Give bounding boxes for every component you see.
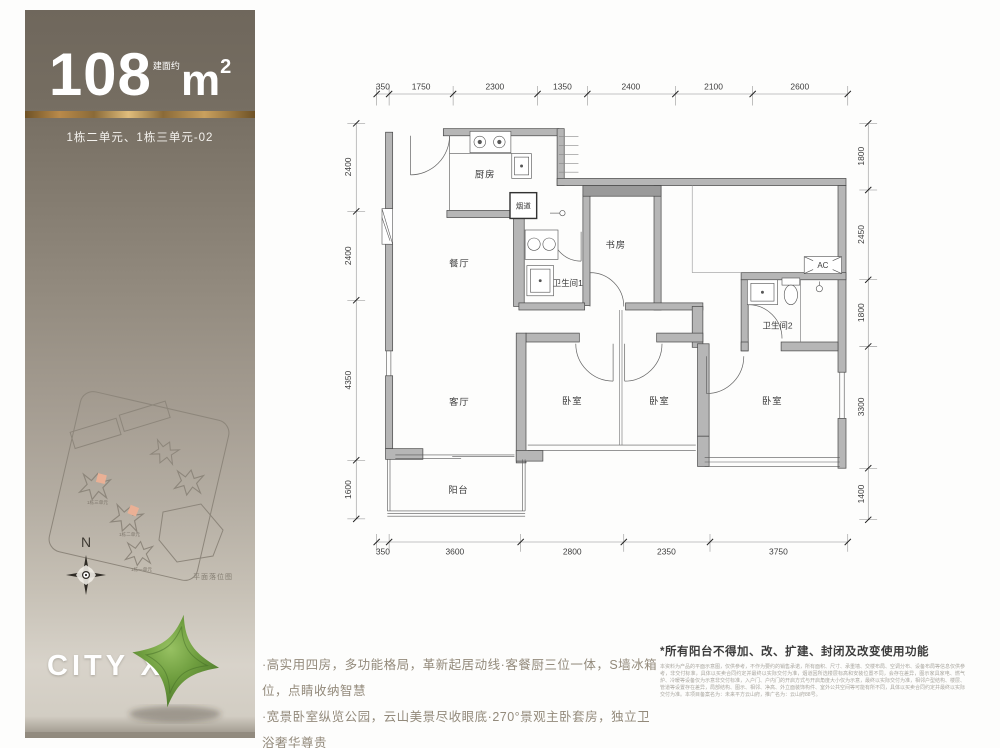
floorplan-poster: 108建面约m2 1栋二单元、1栋三单元-02: [0, 0, 1000, 748]
disclaimer-title: *所有阳台不得加、改、扩建、封闭及改变使用功能: [660, 643, 965, 659]
label-living: 客厅: [449, 396, 469, 407]
dim-left-1: 2400: [343, 246, 353, 265]
dim-bottom-1: 3600: [445, 546, 464, 556]
logo-area: CITY X: [25, 614, 255, 738]
dim-top-2: 2300: [485, 82, 504, 92]
label-study: 书房: [606, 239, 626, 250]
dim-bottom-3: 2350: [657, 546, 676, 556]
dim-top-0: 350: [376, 82, 390, 92]
dim-bottom-4: 3750: [769, 546, 788, 556]
label-ac: AC: [817, 261, 828, 270]
label-bath1: 卫生间1: [553, 278, 583, 288]
building-label-3: 1栋一单元: [131, 566, 152, 573]
dim-top-3: 1350: [553, 82, 572, 92]
sidebar: 108建面约m2 1栋二单元、1栋三单元-02: [25, 10, 255, 738]
dim-left-0: 2400: [343, 157, 353, 176]
green-x-object: [107, 608, 247, 732]
dim-left-2: 4350: [343, 371, 353, 390]
label-balcony: 阳台: [448, 484, 468, 495]
bath2-toilet-icon: [782, 278, 800, 285]
area-superscript: 2: [220, 56, 231, 78]
area-header: 108建面约m2 1栋二单元、1栋三单元-02: [25, 10, 255, 145]
selling-point-1: ·高实用四房，多功能格局，革新起居动线·客餐厨三位一体，S墙冰箱位，点睛收纳智慧: [262, 652, 662, 704]
dimension-numbers: 350 1750 2300 1350 2400 2100 2600 350 36…: [343, 82, 866, 557]
label-bedroom3: 卧室: [762, 395, 782, 406]
disclaimer-body: 本资料为产品的平面示意图，仅供参考，不作为要约的销售承诺，所有面积、尺寸、承重墙…: [660, 664, 965, 699]
area-value: 108: [49, 41, 152, 108]
sidebar-bottom-strip: [25, 732, 255, 738]
shower-head-icon: [816, 286, 822, 292]
dim-top-4: 2400: [621, 82, 640, 92]
compass-rose-icon: [63, 550, 109, 600]
dim-bottom-0: 350: [376, 546, 390, 556]
unit-line: 1栋二单元、1栋三单元-02: [25, 129, 255, 145]
selling-point-2: ·宽景卧室纵览公园，云山美景尽收眼底·270°景观主卧套房，独立卫浴奢华尊贵: [262, 704, 662, 748]
gold-divider: [25, 111, 255, 118]
siteplan-caption: 平面落位图: [193, 572, 233, 582]
label-flue: 烟道: [516, 201, 532, 211]
disclaimer-block: *所有阳台不得加、改、扩建、封闭及改变使用功能 本资料为产品的平面示意图，仅供参…: [660, 643, 965, 699]
area-line: 108建面约m2: [25, 40, 255, 109]
dimension-ticks: [353, 91, 871, 545]
compass-n-label: N: [63, 534, 123, 550]
area-approx-label: 建面约: [153, 61, 180, 71]
dim-bottom-2: 2800: [563, 546, 582, 556]
dim-left-3: 1600: [343, 480, 353, 499]
dim-right-1: 2450: [856, 225, 866, 244]
dim-right-2: 1800: [856, 303, 866, 322]
siteplan-slabs: [70, 401, 171, 448]
dim-top-5: 2100: [704, 82, 723, 92]
label-bedroom2: 卧室: [649, 395, 669, 406]
label-dining: 餐厅: [449, 257, 469, 268]
selling-points: ·高实用四房，多功能格局，革新起居动线·客餐厨三位一体，S墙冰箱位，点睛收纳智慧…: [262, 652, 662, 748]
label-kitchen: 厨房: [475, 169, 495, 180]
compass: N: [63, 534, 123, 614]
label-bath2: 卫生间2: [763, 321, 793, 331]
dimension-lines: [347, 86, 877, 552]
dim-right-0: 1800: [856, 147, 866, 166]
dim-right-4: 1400: [856, 484, 866, 503]
dim-top-1: 1750: [412, 82, 431, 92]
floorplan-drawing: 厨房 烟道 餐厅 卫生间1 书房 AC 卫生间2 客厅 卧室 卧室 卧室 阳台: [300, 70, 960, 630]
dim-right-3: 3300: [856, 397, 866, 416]
label-bedroom1: 卧室: [562, 395, 582, 406]
building-label-1: 1栋三单元: [87, 499, 108, 506]
area-unit: m: [181, 56, 220, 105]
dim-top-6: 2600: [790, 82, 809, 92]
